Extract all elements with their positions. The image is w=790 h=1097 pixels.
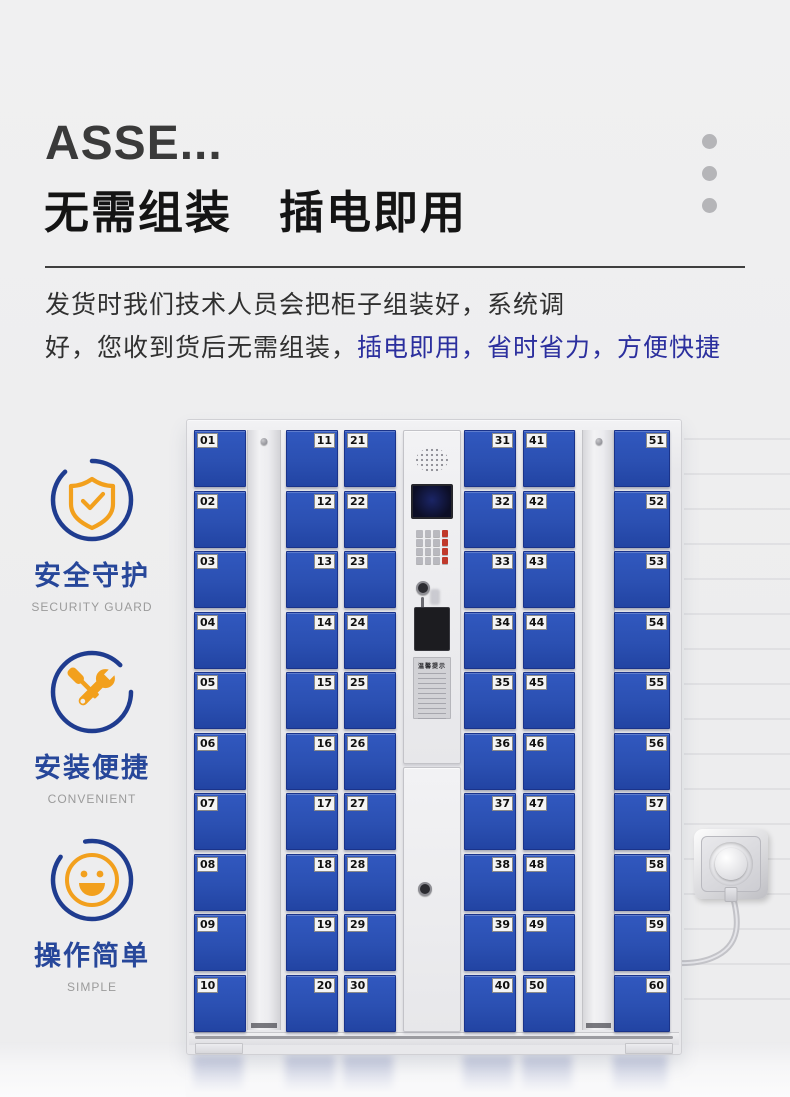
door-number-label: 24 (347, 615, 368, 630)
door-number-label: 07 (197, 796, 218, 811)
locker-door: 36 (464, 733, 516, 790)
promo-page: ASSE... 无需组装 插电即用 发货时我们技术人员会把柜子组装好，系统调 好… (0, 0, 790, 1097)
locker-door: 02 (194, 491, 246, 548)
cabinet-foot (195, 1043, 243, 1054)
locker-door: 43 (523, 551, 575, 608)
door-number-label: 56 (646, 736, 667, 751)
power-plug (715, 848, 747, 880)
keyhole-icon (418, 882, 432, 896)
locker-door: 13 (286, 551, 338, 608)
locker-door: 41 (523, 430, 575, 487)
door-number-label: 31 (492, 433, 513, 448)
locker-door: 49 (523, 914, 575, 971)
locker-door: 17 (286, 793, 338, 850)
door-number-label: 40 (492, 978, 513, 993)
shield-check-icon (48, 456, 136, 544)
locker-door: 44 (523, 612, 575, 669)
door-number-label: 57 (646, 796, 667, 811)
door-number-label: 33 (492, 554, 513, 569)
keypad-key (442, 548, 449, 555)
door-number-label: 13 (314, 554, 335, 569)
locker-door: 54 (614, 612, 670, 669)
dot-icon (702, 134, 717, 149)
door-number-label: 17 (314, 796, 335, 811)
locker-door: 16 (286, 733, 338, 790)
door-number-label: 03 (197, 554, 218, 569)
power-socket (694, 829, 768, 899)
locker-door: 27 (344, 793, 396, 850)
locker-door: 52 (614, 491, 670, 548)
locker-door: 30 (344, 975, 396, 1032)
locker-door: 15 (286, 672, 338, 729)
locker-door: 45 (523, 672, 575, 729)
locker-door: 31 (464, 430, 516, 487)
locker-column: 41424344454647484950 (523, 430, 573, 1030)
door-number-label: 54 (646, 615, 667, 630)
hinge-strip (247, 430, 281, 1030)
door-number-label: 32 (492, 494, 513, 509)
locker-door: 05 (194, 672, 246, 729)
locker-door: 14 (286, 612, 338, 669)
door-number-label: 29 (347, 917, 368, 932)
screw-icon (595, 438, 602, 445)
keypad-key (425, 530, 432, 537)
door-number-label: 18 (314, 857, 335, 872)
door-number-label: 55 (646, 675, 667, 690)
locker-column: 31323334353637383940 (464, 430, 514, 1030)
locker-door: 38 (464, 854, 516, 911)
door-number-label: 34 (492, 615, 513, 630)
keypad-key (416, 539, 423, 546)
locker-door: 19 (286, 914, 338, 971)
notice-sticker: 温馨提示 (413, 657, 451, 719)
locker-door: 07 (194, 793, 246, 850)
reflection-fade (186, 1056, 680, 1097)
door-number-label: 51 (646, 433, 667, 448)
keypad-key (416, 530, 423, 537)
locker-door: 28 (344, 854, 396, 911)
keypad-key (442, 557, 449, 564)
locker-door: 06 (194, 733, 246, 790)
keypad-key (425, 539, 432, 546)
door-number-label: 30 (347, 978, 368, 993)
locker-door: 03 (194, 551, 246, 608)
keypad-key (433, 548, 440, 555)
plug-connector (725, 887, 738, 902)
door-number-label: 27 (347, 796, 368, 811)
locker-door: 46 (523, 733, 575, 790)
sticker-text-lines (418, 673, 446, 719)
locker-door: 33 (464, 551, 516, 608)
locker-door: 53 (614, 551, 670, 608)
locker-door: 51 (614, 430, 670, 487)
keypad-key (425, 548, 432, 555)
feature-security: 安全守护 SECURITY GUARD (10, 456, 174, 614)
locker-door: 12 (286, 491, 338, 548)
door-number-label: 14 (314, 615, 335, 630)
door-number-label: 09 (197, 917, 218, 932)
door-number-label: 04 (197, 615, 218, 630)
door-number-label: 42 (526, 494, 547, 509)
door-number-label: 15 (314, 675, 335, 690)
door-number-label: 59 (646, 917, 667, 932)
door-number-label: 22 (347, 494, 368, 509)
door-number-label: 50 (526, 978, 547, 993)
door-number-label: 48 (526, 857, 547, 872)
locker-door: 01 (194, 430, 246, 487)
locker-door: 55 (614, 672, 670, 729)
page-title-en: ASSE... (45, 116, 223, 171)
socket-inner-plate (701, 836, 761, 892)
card-reader-window (414, 607, 450, 651)
door-number-label: 12 (314, 494, 335, 509)
door-number-label: 35 (492, 675, 513, 690)
locker-cabinet: 0102030405060708091011121314151617181920… (186, 419, 682, 1055)
door-number-label: 01 (197, 433, 218, 448)
locker-door: 22 (344, 491, 396, 548)
locker-door: 35 (464, 672, 516, 729)
door-number-label: 16 (314, 736, 335, 751)
smiley-icon (48, 836, 136, 924)
locker-column: 21222324252627282930 (344, 430, 394, 1030)
hinge-strip (582, 430, 615, 1030)
door-number-label: 26 (347, 736, 368, 751)
screw-icon (261, 438, 268, 445)
dot-icon (702, 166, 717, 181)
locker-door: 09 (194, 914, 246, 971)
door-number-label: 23 (347, 554, 368, 569)
door-number-label: 06 (197, 736, 218, 751)
dot-icon (702, 198, 717, 213)
feature-label: 安全守护 (34, 554, 150, 593)
tools-icon (48, 648, 136, 736)
door-number-label: 52 (646, 494, 667, 509)
locker-door: 23 (344, 551, 396, 608)
feature-label: 安装便捷 (34, 746, 150, 785)
locker-door: 57 (614, 793, 670, 850)
locker-door: 56 (614, 733, 670, 790)
feature-caption: SECURITY GUARD (31, 600, 152, 614)
door-number-label: 38 (492, 857, 513, 872)
door-number-label: 10 (197, 978, 218, 993)
locker-door: 37 (464, 793, 516, 850)
door-number-label: 19 (314, 917, 335, 932)
locker-door: 04 (194, 612, 246, 669)
locker-door: 25 (344, 672, 396, 729)
locker-door: 32 (464, 491, 516, 548)
control-lower-door (403, 767, 461, 1032)
feature-label: 操作简单 (34, 934, 150, 973)
locker-door: 18 (286, 854, 338, 911)
door-number-label: 05 (197, 675, 218, 690)
keypad-key (416, 548, 423, 555)
keypad (416, 530, 448, 564)
door-number-label: 43 (526, 554, 547, 569)
locker-door: 26 (344, 733, 396, 790)
cabinet-base-shadow (195, 1036, 673, 1039)
door-number-label: 49 (526, 917, 547, 932)
locker-column: 51525354555657585960 (614, 430, 668, 1030)
locker-door: 59 (614, 914, 670, 971)
speaker-grille-icon (416, 448, 448, 472)
locker-door: 08 (194, 854, 246, 911)
keypad-key (425, 557, 432, 564)
divider-line (45, 266, 745, 268)
feature-caption: CONVENIENT (48, 792, 137, 806)
door-number-label: 60 (646, 978, 667, 993)
locker-door: 20 (286, 975, 338, 1032)
keypad-key (442, 530, 449, 537)
door-number-label: 37 (492, 796, 513, 811)
display-screen (411, 484, 453, 519)
keyhole-icon (416, 581, 430, 595)
door-number-label: 08 (197, 857, 218, 872)
locker-door: 60 (614, 975, 670, 1032)
locker-door: 21 (344, 430, 396, 487)
feature-simple: 操作简单 SIMPLE (10, 836, 174, 994)
description-text: 发货时我们技术人员会把柜子组装好，系统调 好，您收到货后无需组装，插电即用，省时… (45, 284, 755, 370)
feature-install: 安装便捷 CONVENIENT (10, 648, 174, 806)
wall-paneling (684, 438, 790, 1023)
door-number-label: 21 (347, 433, 368, 448)
locker-door: 47 (523, 793, 575, 850)
door-number-label: 46 (526, 736, 547, 751)
description-highlight: 插电即用，省时省力，方便快捷 (357, 334, 721, 362)
description-line1: 发货时我们技术人员会把柜子组装好，系统调 (45, 291, 565, 319)
locker-door: 42 (523, 491, 575, 548)
keypad-key (433, 530, 440, 537)
door-number-label: 11 (314, 433, 335, 448)
door-number-label: 45 (526, 675, 547, 690)
locker-column: 01020304050607080910 (194, 430, 244, 1030)
sticker-title: 温馨提示 (414, 661, 450, 670)
keypad-key (442, 539, 449, 546)
locker-door: 24 (344, 612, 396, 669)
locker-door: 58 (614, 854, 670, 911)
door-number-label: 02 (197, 494, 218, 509)
door-number-label: 39 (492, 917, 513, 932)
door-number-label: 36 (492, 736, 513, 751)
locker-door: 11 (286, 430, 338, 487)
locker-door: 50 (523, 975, 575, 1032)
locker-column: 11121314151617181920 (286, 430, 336, 1030)
door-number-label: 41 (526, 433, 547, 448)
door-number-label: 20 (314, 978, 335, 993)
control-panel: 温馨提示 (403, 430, 461, 764)
locker-door: 29 (344, 914, 396, 971)
locker-door: 39 (464, 914, 516, 971)
door-number-label: 53 (646, 554, 667, 569)
locker-door: 40 (464, 975, 516, 1032)
page-title-cn: 无需组装 插电即用 (44, 176, 467, 241)
locker-door: 34 (464, 612, 516, 669)
door-number-label: 25 (347, 675, 368, 690)
door-number-label: 47 (526, 796, 547, 811)
keypad-key (433, 557, 440, 564)
locker-door: 48 (523, 854, 575, 911)
door-number-label: 44 (526, 615, 547, 630)
keypad-key (416, 557, 423, 564)
locker-door: 10 (194, 975, 246, 1032)
description-line2: 好，您收到货后无需组装， (45, 334, 357, 362)
feature-caption: SIMPLE (67, 980, 117, 994)
decorative-dots (702, 134, 717, 230)
door-number-label: 28 (347, 857, 368, 872)
door-number-label: 58 (646, 857, 667, 872)
cabinet-foot (625, 1043, 673, 1054)
keypad-key (433, 539, 440, 546)
